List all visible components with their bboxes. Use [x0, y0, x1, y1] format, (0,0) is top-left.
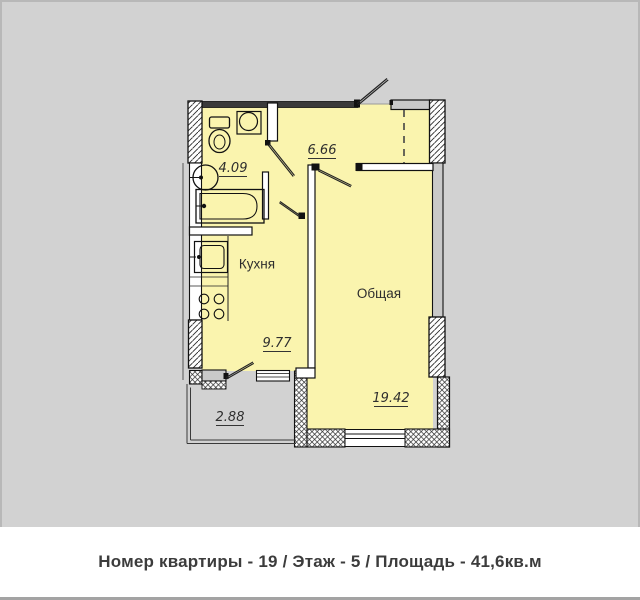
pier-right — [429, 317, 445, 377]
pier-top-left — [188, 101, 202, 163]
hallway-area-label: 6.66 — [308, 143, 337, 158]
bathroom-area-label: 4.09 — [219, 161, 248, 176]
wall-top-panel — [391, 100, 431, 110]
balcony-block-panel — [202, 370, 226, 381]
pier-balcony-left — [190, 371, 204, 385]
wall-bathroom-east-upper — [268, 103, 278, 141]
wall-top-panel-cap — [390, 100, 394, 105]
footer: Номер квартиры - 19 / Этаж - 5 / Площадь… — [0, 527, 640, 597]
balcony-window — [257, 371, 290, 382]
wall-bathroom-south — [190, 227, 253, 235]
south-window — [345, 430, 405, 447]
pier-mid-left — [189, 320, 203, 368]
balcony-area-label: 2.88 — [216, 410, 245, 425]
floorplan-page: 4.09 6.66 Кухня 9.77 Общая 19.42 2.88 Но… — [0, 0, 640, 600]
pier-top-right — [430, 100, 446, 163]
balcony-block-hatch — [202, 381, 226, 389]
wall-top — [199, 102, 358, 108]
kitchen-label: Кухня — [239, 257, 275, 272]
wall-bottom-left-segment — [307, 429, 345, 447]
floorplan-canvas: 4.09 6.66 Кухня 9.77 Общая 19.42 2.88 — [0, 0, 640, 527]
wall-right-panel — [433, 163, 444, 317]
wall-living-west-lower — [295, 371, 308, 447]
wall-kitchen-step — [296, 368, 315, 378]
wall-living-north — [357, 164, 433, 171]
living-room-label: Общая — [357, 286, 401, 301]
living-room-area-label: 19.42 — [372, 391, 409, 406]
living-room-door-hinge — [312, 164, 320, 171]
apartment-info: Номер квартиры - 19 / Этаж - 5 / Площадь… — [98, 552, 542, 572]
wall-living-north-cap — [356, 163, 363, 171]
floorplan-drawing: 4.09 6.66 Кухня 9.77 Общая 19.42 2.88 — [0, 0, 640, 527]
wall-living-west — [308, 165, 315, 368]
kitchen-area-label: 9.77 — [263, 336, 293, 351]
wall-bottom-right-segment — [405, 429, 450, 447]
